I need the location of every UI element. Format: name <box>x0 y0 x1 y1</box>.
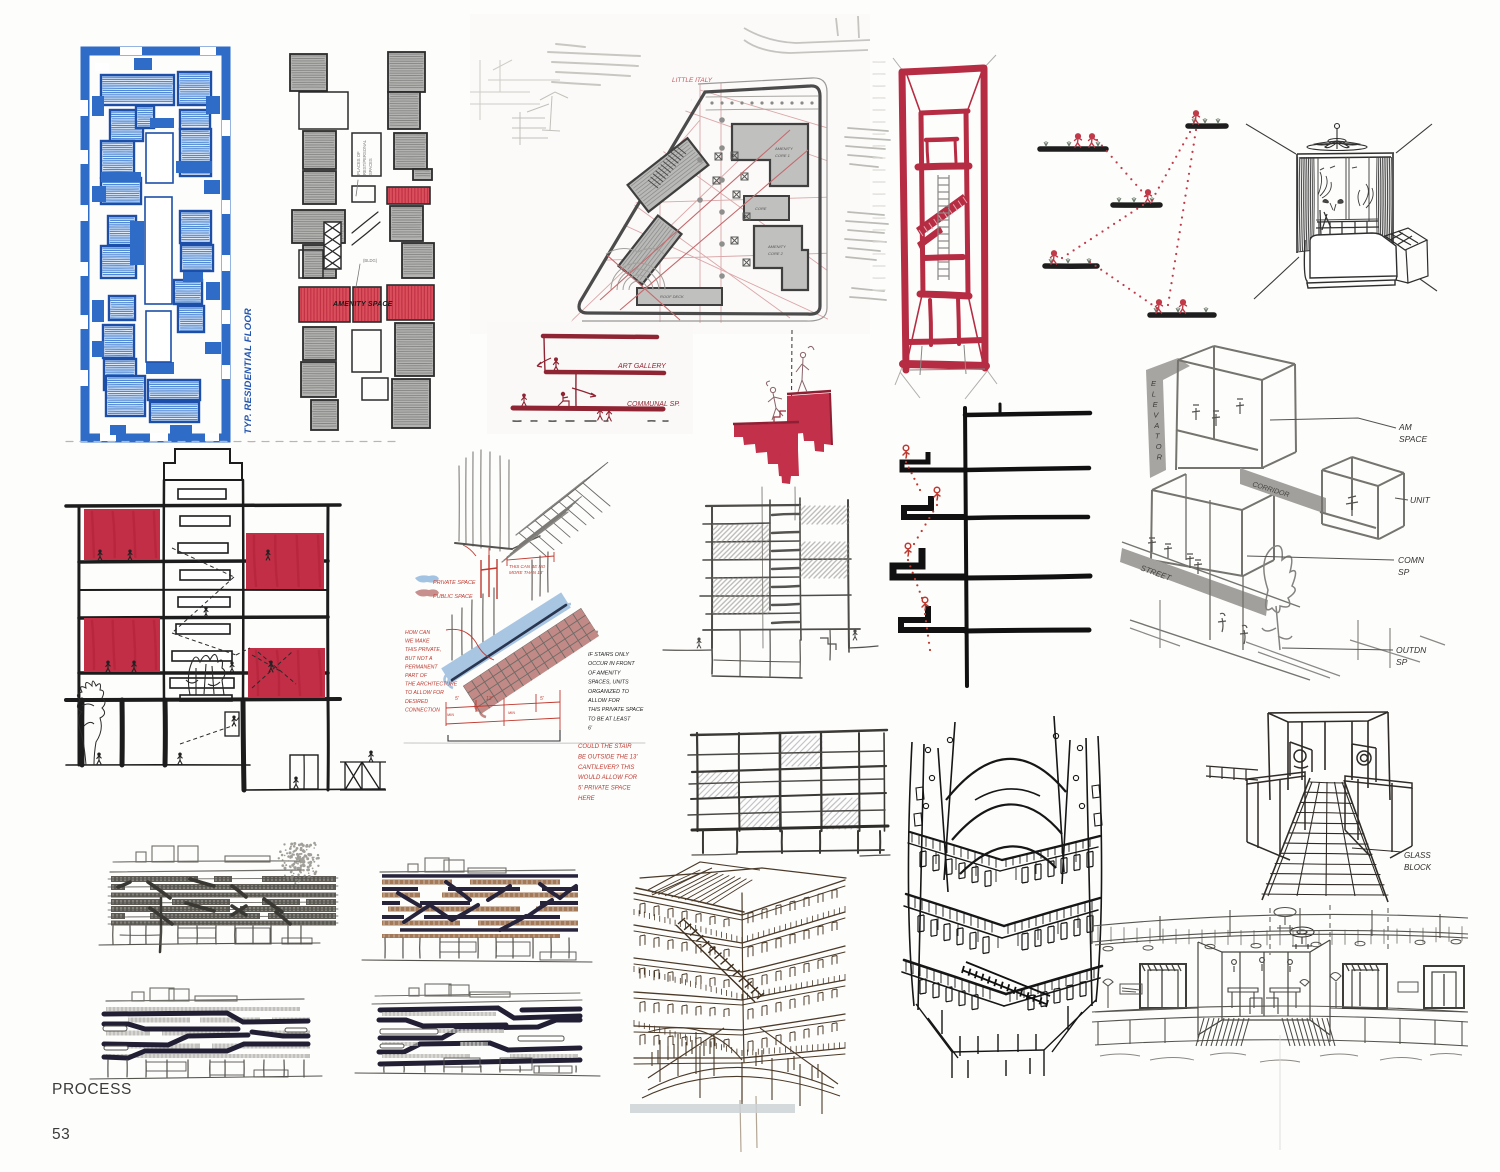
svg-text:AM: AM <box>1398 422 1413 432</box>
svg-text:IF STAIRS ONLY: IF STAIRS ONLY <box>588 652 629 658</box>
svg-text:CORE 2: CORE 2 <box>768 251 784 256</box>
svg-text:DESIRED: DESIRED <box>405 699 428 705</box>
svg-text:COMN: COMN <box>1398 555 1425 565</box>
svg-text:THIS PRIVATE,: THIS PRIVATE, <box>405 647 441 653</box>
svg-text:PRIVATE SPACE: PRIVATE SPACE <box>433 580 476 586</box>
svg-text:SPACES: SPACES <box>368 158 373 175</box>
svg-text:MORE THAN 13': MORE THAN 13' <box>509 570 543 575</box>
svg-text:MIN: MIN <box>447 713 454 717</box>
svg-text:REST/PERSONAL: REST/PERSONAL <box>362 139 367 175</box>
svg-text:OCCUR IN FRONT: OCCUR IN FRONT <box>588 661 635 667</box>
svg-text:COULD THE STAIR: COULD THE STAIR <box>578 744 632 750</box>
svg-text:PROCESS: PROCESS <box>52 1081 132 1098</box>
svg-text:CORE 1: CORE 1 <box>775 153 790 158</box>
svg-text:ART GALLERY: ART GALLERY <box>617 363 667 370</box>
svg-text:MIN: MIN <box>508 711 515 715</box>
svg-text:SPACE: SPACE <box>1399 434 1428 444</box>
svg-text:BLOCK: BLOCK <box>1404 863 1432 872</box>
svg-text:WE MAKE: WE MAKE <box>405 639 430 645</box>
svg-text:THIS PRIVATE SPACE: THIS PRIVATE SPACE <box>588 707 644 713</box>
svg-text:THIS CAN BE NO: THIS CAN BE NO <box>509 564 546 569</box>
svg-text:BE OUTSIDE THE 13': BE OUTSIDE THE 13' <box>578 754 638 760</box>
svg-text:COMMUNAL SP.: COMMUNAL SP. <box>627 401 680 408</box>
svg-text:HERE: HERE <box>578 796 596 802</box>
svg-text:TO ALLOW FOR: TO ALLOW FOR <box>405 690 444 696</box>
svg-text:AMENITY: AMENITY <box>767 244 786 249</box>
svg-text:ORGANIZED TO: ORGANIZED TO <box>588 689 630 695</box>
svg-text:R: R <box>1157 453 1163 462</box>
svg-text:ROOF DECK: ROOF DECK <box>660 294 684 299</box>
svg-text:CANTILEVER? THIS: CANTILEVER? THIS <box>578 765 634 771</box>
svg-text:5' PRIVATE SPACE: 5' PRIVATE SPACE <box>578 786 632 792</box>
svg-text:TO BE AT LEAST: TO BE AT LEAST <box>588 716 631 722</box>
svg-text:PUBLIC SPACE: PUBLIC SPACE <box>433 594 473 600</box>
svg-text:TYP. RESIDENTIAL FLOOR: TYP. RESIDENTIAL FLOOR <box>243 308 254 434</box>
svg-text:L: L <box>1152 390 1156 399</box>
svg-text:A: A <box>1153 421 1159 430</box>
svg-text:53: 53 <box>52 1126 70 1143</box>
svg-text:PART OF: PART OF <box>405 673 428 679</box>
svg-text:HOW CAN: HOW CAN <box>405 630 430 636</box>
svg-text:AMENITY: AMENITY <box>774 146 793 151</box>
svg-text:CONNECTION: CONNECTION <box>405 707 440 713</box>
svg-text:SP: SP <box>1398 567 1410 577</box>
svg-text:UNIT: UNIT <box>1410 495 1431 505</box>
svg-text:SP: SP <box>1396 657 1408 667</box>
svg-text:OUTDN: OUTDN <box>1396 645 1427 655</box>
svg-text:OF AMENITY: OF AMENITY <box>588 670 621 676</box>
svg-text:AMENITY SPACE: AMENITY SPACE <box>332 301 393 308</box>
svg-text:THE ARCHITECTURE: THE ARCHITECTURE <box>405 682 458 688</box>
svg-text:SPACES, UNITS: SPACES, UNITS <box>588 680 629 686</box>
svg-text:PLACES OF: PLACES OF <box>356 151 361 175</box>
svg-text:ALLOW FOR: ALLOW FOR <box>587 698 620 704</box>
svg-text:(BLDG): (BLDG) <box>363 258 378 263</box>
svg-text:PERMANENT: PERMANENT <box>405 664 438 670</box>
svg-text:GLASS: GLASS <box>1404 851 1431 860</box>
svg-text:13': 13' <box>486 696 494 702</box>
svg-text:BUT NOT A: BUT NOT A <box>405 656 433 662</box>
svg-text:WOULD ALLOW FOR: WOULD ALLOW FOR <box>578 775 638 781</box>
svg-text:O: O <box>1156 442 1162 451</box>
svg-text:CORE: CORE <box>755 206 767 211</box>
